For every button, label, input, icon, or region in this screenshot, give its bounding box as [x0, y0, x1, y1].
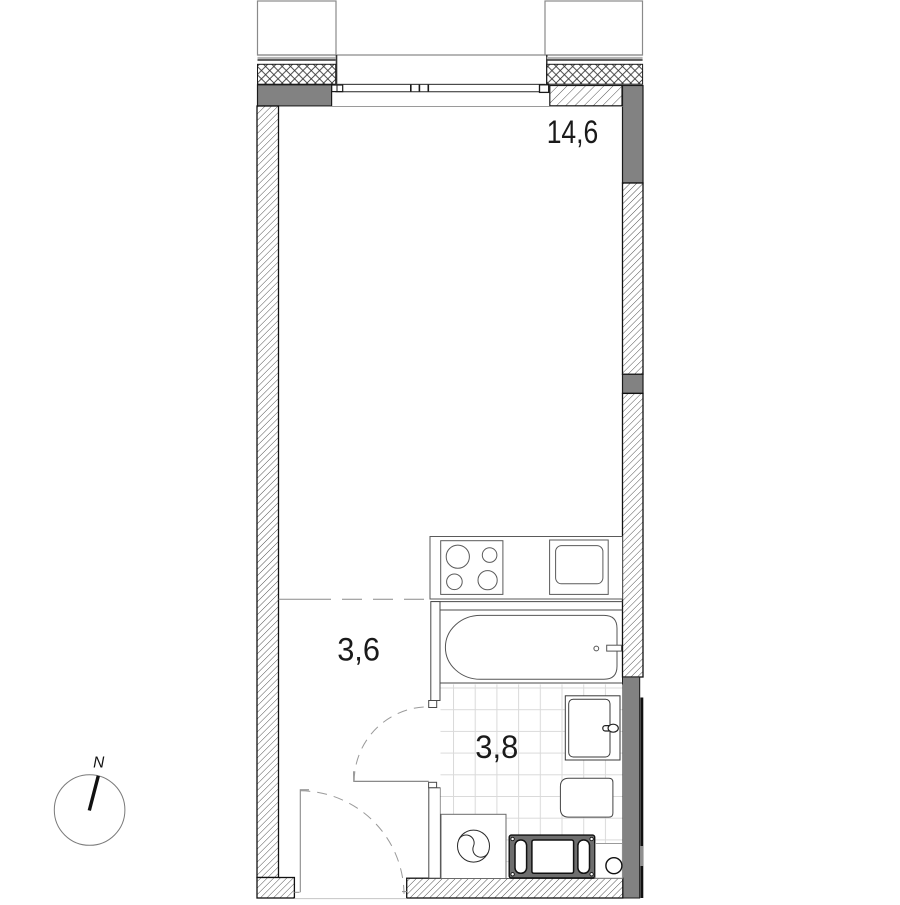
svg-text:3,8: 3,8: [475, 729, 518, 765]
svg-text:N: N: [93, 754, 105, 771]
svg-text:3,6: 3,6: [337, 631, 380, 667]
svg-text:14,6: 14,6: [547, 114, 599, 150]
